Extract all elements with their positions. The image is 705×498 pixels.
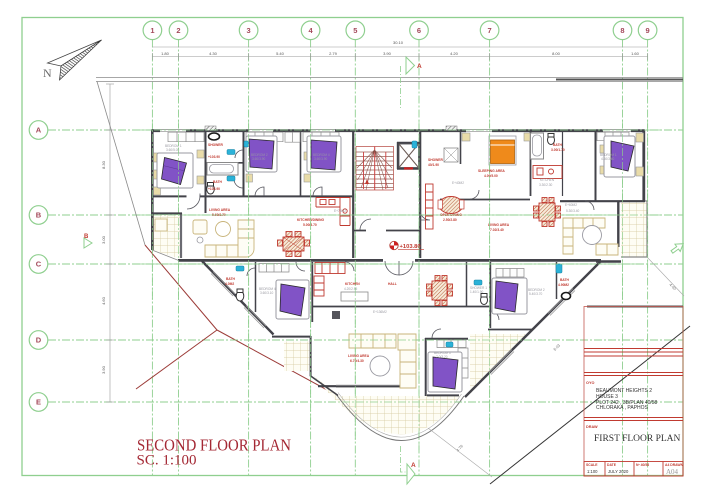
- svg-text:OYO: OYO: [586, 381, 594, 385]
- svg-text:5.00/3.70: 5.00/3.70: [303, 223, 317, 227]
- svg-text:B: B: [36, 211, 42, 220]
- svg-text:3.60/3.90: 3.60/3.90: [314, 157, 328, 161]
- svg-text:6: 6: [417, 26, 421, 35]
- svg-text:E: E: [36, 398, 41, 407]
- svg-text:HALL: HALL: [388, 282, 397, 286]
- svg-text:4.0M2: 4.0M2: [225, 282, 234, 286]
- svg-text:A04: A04: [666, 468, 679, 476]
- svg-text:+103.90: +103.90: [208, 155, 220, 159]
- svg-text:Nº 40/58: Nº 40/58: [636, 463, 649, 467]
- svg-text:6.70/4.30: 6.70/4.30: [350, 359, 364, 363]
- svg-text:B: B: [84, 234, 89, 240]
- svg-text:+103.90: +103.90: [208, 187, 220, 191]
- svg-text:9: 9: [646, 26, 650, 35]
- svg-text:LIVING AREA: LIVING AREA: [488, 223, 510, 227]
- svg-text:5.40: 5.40: [276, 51, 285, 56]
- svg-text:4.20: 4.20: [450, 51, 459, 56]
- svg-text:3.90: 3.90: [101, 365, 106, 374]
- svg-text:KITCHEN: KITCHEN: [540, 178, 555, 182]
- svg-text:4.00/5.00: 4.00/5.00: [484, 174, 498, 178]
- svg-text:+103.80: +103.80: [400, 244, 421, 250]
- svg-text:40/1.90: 40/1.90: [428, 163, 439, 167]
- svg-text:1.40/1.90: 1.40/1.90: [470, 290, 484, 294]
- svg-text:FIRST FLOOR PLAN: FIRST FLOOR PLAN: [594, 434, 681, 444]
- svg-text:SHOWER: SHOWER: [208, 143, 223, 147]
- svg-text:E+136M2: E+136M2: [373, 310, 387, 314]
- svg-text:DATE: DATE: [607, 463, 617, 467]
- svg-text:A4 DRAWN: A4 DRAWN: [665, 463, 684, 467]
- svg-text:7: 7: [488, 26, 492, 35]
- svg-text:KITCHEN: KITCHEN: [345, 282, 360, 286]
- svg-text:2: 2: [176, 26, 180, 35]
- svg-text:8.30: 8.30: [101, 160, 106, 169]
- svg-text:N: N: [43, 66, 52, 80]
- svg-text:CHLORAKA , PAPHOS: CHLORAKA , PAPHOS: [596, 405, 649, 411]
- svg-text:E+60M2: E+60M2: [565, 203, 577, 207]
- svg-text:5.30/3.40: 5.30/3.40: [566, 209, 580, 213]
- svg-text:SLEEPING AREA: SLEEPING AREA: [478, 169, 505, 173]
- svg-text:E+40M2: E+40M2: [452, 181, 464, 185]
- svg-text:3.00/1.70: 3.00/1.70: [551, 148, 565, 152]
- svg-text:A: A: [417, 63, 422, 70]
- svg-text:BATH: BATH: [553, 143, 563, 147]
- svg-text:D: D: [36, 336, 42, 345]
- svg-text:3.60/5.05: 3.60/5.05: [166, 148, 180, 152]
- svg-text:1:100: 1:100: [587, 469, 598, 474]
- svg-text:5: 5: [353, 26, 357, 35]
- svg-text:DRAW: DRAW: [586, 425, 598, 429]
- svg-text:3.00: 3.00: [101, 235, 106, 244]
- svg-text:E+75M2: E+75M2: [334, 209, 346, 213]
- svg-text:3.60/3.10: 3.60/3.10: [260, 291, 274, 295]
- svg-text:8.00: 8.00: [552, 51, 561, 56]
- svg-text:2.79: 2.79: [329, 51, 338, 56]
- svg-text:A: A: [411, 462, 416, 469]
- svg-text:3: 3: [247, 26, 251, 35]
- svg-text:A: A: [36, 126, 42, 135]
- svg-text:SC. 1:100: SC. 1:100: [137, 453, 197, 469]
- svg-text:7.02/3.40: 7.02/3.40: [490, 228, 504, 232]
- svg-text:BATH: BATH: [226, 277, 236, 281]
- svg-text:1: 1: [150, 26, 154, 35]
- svg-text:4.30: 4.30: [209, 51, 218, 56]
- svg-text:30.10: 30.10: [393, 40, 404, 45]
- svg-text:3.60/3.90: 3.60/3.90: [252, 157, 266, 161]
- svg-text:3.90: 3.90: [383, 51, 392, 56]
- svg-text:BATH: BATH: [560, 278, 570, 282]
- svg-text:5.40/3.70: 5.40/3.70: [529, 292, 543, 296]
- svg-text:SCALE: SCALE: [586, 463, 598, 467]
- svg-text:1.60: 1.60: [631, 51, 640, 56]
- svg-text:SHOWER: SHOWER: [428, 158, 443, 162]
- svg-text:4.90M2: 4.90M2: [558, 283, 569, 287]
- svg-text:4.60: 4.60: [101, 296, 106, 305]
- svg-text:3.30/2.30: 3.30/2.30: [539, 183, 553, 187]
- svg-text:BATH: BATH: [213, 180, 223, 184]
- svg-text:LIVING AREA: LIVING AREA: [209, 208, 231, 212]
- svg-text:2.50/2.80: 2.50/2.80: [443, 218, 457, 222]
- svg-text:8: 8: [620, 26, 624, 35]
- svg-text:LIVING AREA: LIVING AREA: [348, 354, 370, 358]
- svg-text:1.80: 1.80: [161, 51, 170, 56]
- svg-text:7.0/3.20: 7.0/3.20: [436, 355, 448, 359]
- svg-text:4.60/3.60: 4.60/3.60: [601, 157, 615, 161]
- svg-text:JULY 2020: JULY 2020: [608, 469, 629, 474]
- svg-text:C: C: [36, 260, 42, 269]
